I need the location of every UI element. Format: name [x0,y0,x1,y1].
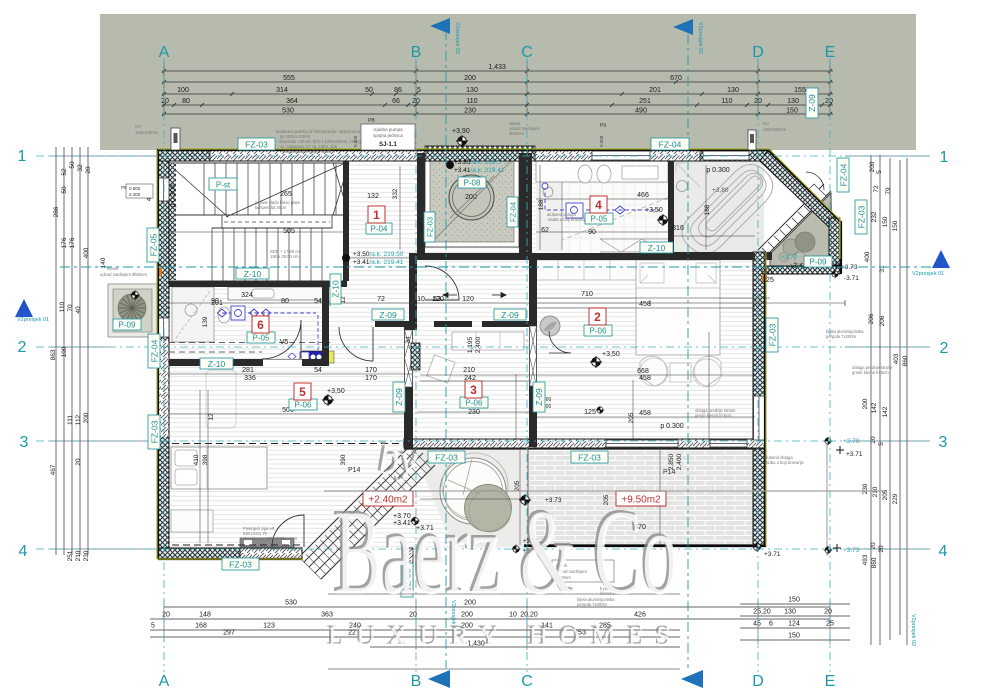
svg-text:100: 100 [61,346,68,357]
svg-text:142: 142 [871,402,878,413]
svg-text:54: 54 [314,367,322,374]
svg-text:398: 398 [202,454,209,465]
svg-text:P-06: P-06 [590,327,607,336]
svg-text:670: 670 [670,75,682,82]
svg-text:100x100mm: 100x100mm [763,127,787,132]
svg-text:50: 50 [69,161,76,169]
svg-text:130: 130 [727,87,739,94]
svg-text:80: 80 [182,98,190,105]
svg-text:+3.50/a.k. 219.50: +3.50/a.k. 219.50 [353,251,404,258]
svg-text:458: 458 [639,375,651,382]
svg-text:176: 176 [61,237,68,248]
svg-text:FZ-03: FZ-03 [150,420,160,443]
svg-text:125: 125 [762,277,774,284]
svg-text:230: 230 [468,409,480,416]
svg-text:FZ-03: FZ-03 [245,140,268,150]
svg-text:- temperaturni odgovrst 20 A: - temperaturni odgovrst 20 A [282,149,335,154]
svg-text:50: 50 [61,186,68,194]
svg-text:LUXURY HOMES: LUXURY HOMES [328,622,683,652]
svg-text:D: D [752,673,764,690]
svg-text:66: 66 [392,98,400,105]
svg-text:205: 205 [628,412,635,423]
svg-text:20: 20 [75,458,82,466]
svg-text:390: 390 [340,454,347,465]
svg-text:100: 100 [177,87,189,94]
svg-text:200: 200 [862,398,869,409]
svg-text:132: 132 [367,193,379,200]
svg-text:403: 403 [893,353,900,364]
svg-text:530: 530 [285,600,297,607]
svg-text:+3.73: +3.73 [841,264,858,271]
svg-text:P-09: P-09 [810,258,827,267]
svg-text:139: 139 [202,316,209,327]
svg-text:P-06: P-06 [466,399,483,408]
svg-text:OV: OV [135,124,141,129]
svg-text:P-04: P-04 [371,225,388,234]
svg-text:2.300: 2.300 [129,192,141,197]
svg-text:P-05: P-05 [591,215,608,224]
svg-text:FZ-03: FZ-03 [578,453,601,463]
svg-text:P9: P9 [600,123,606,129]
svg-text:V2presjek 02: V2presjek 02 [454,22,460,54]
svg-text:+3,90: +3,90 [452,128,470,135]
svg-text:34: 34 [405,336,412,344]
svg-text:230: 230 [83,550,90,561]
svg-text:+3.70: +3.70 [781,254,798,261]
svg-text:150: 150 [788,633,800,640]
svg-text:364: 364 [286,98,298,105]
svg-text:251: 251 [639,98,651,105]
svg-text:70: 70 [67,304,74,312]
svg-text:5: 5 [299,385,306,399]
svg-text:FZ-04: FZ-04 [839,163,849,186]
svg-text:150: 150 [786,108,798,115]
svg-text:210: 210 [463,367,475,374]
svg-text:odvod zardinjere Ø50mm: odvod zardinjere Ø50mm [100,272,148,277]
svg-text:B: B [411,44,422,61]
svg-text:40: 40 [75,306,82,314]
svg-text:Z-09: Z-09 [379,310,397,320]
svg-text:P-09: P-09 [119,321,136,330]
svg-text:2,850: 2,850 [668,453,675,470]
svg-text:45: 45 [753,621,761,628]
svg-text:FZ-04: FZ-04 [150,339,160,362]
svg-text:10: 10 [417,296,425,303]
svg-text:V2presjek 01: V2presjek 01 [912,271,944,277]
svg-text:206: 206 [868,313,875,324]
svg-text:5: 5 [876,170,883,174]
svg-text:p 0.300: p 0.300 [706,167,729,174]
svg-text:110: 110 [721,98,732,105]
svg-text:148: 148 [199,612,211,619]
svg-text:2,400: 2,400 [475,336,482,353]
svg-text:112: 112 [75,414,82,425]
svg-text:1: 1 [373,208,380,222]
svg-text:168: 168 [195,623,207,630]
svg-text:FZ-05: FZ-05 [149,233,159,256]
svg-text:130: 130 [784,609,796,616]
svg-text:25,20: 25,20 [753,609,771,616]
svg-text:V2presjek 02: V2presjek 02 [910,614,916,646]
svg-text:170: 170 [365,375,377,382]
svg-text:Z-09: Z-09 [501,310,519,320]
svg-text:Z-10: Z-10 [244,269,262,279]
svg-text:A: A [159,44,170,61]
svg-text:86: 86 [394,87,402,94]
svg-text:3: 3 [470,383,477,397]
svg-text:90: 90 [211,298,219,305]
svg-text:P-08: P-08 [464,179,481,188]
svg-text:p 0.300: p 0.300 [170,184,177,207]
svg-text:316: 316 [672,225,684,232]
svg-text:E: E [825,44,836,61]
svg-text:1,433: 1,433 [488,64,506,71]
svg-text:+3,50: +3,50 [327,388,345,395]
svg-text:4: 4 [19,543,28,560]
svg-text:190 x 28.00 cm: 190 x 28.00 cm [270,254,299,259]
svg-text:90: 90 [588,229,596,236]
svg-text:200: 200 [464,75,476,82]
svg-text:E: E [825,673,836,690]
svg-text:A: A [159,673,170,690]
svg-text:120: 120 [462,296,474,303]
svg-text:710: 710 [581,291,593,298]
svg-text:Baerz & Co: Baerz & Co [334,485,678,620]
svg-text:493: 493 [862,554,869,565]
svg-text:5: 5 [878,442,885,446]
svg-text:170: 170 [365,367,377,374]
svg-text:D: D [752,44,764,61]
svg-text:FZ-03: FZ-03 [768,323,778,346]
svg-text:2: 2 [940,340,949,357]
svg-text:SJ-1.1: SJ-1.1 [379,142,397,148]
svg-text:400: 400 [864,251,871,262]
svg-text:110: 110 [466,98,477,105]
svg-text:281: 281 [242,367,254,374]
svg-text:by: by [379,438,419,484]
svg-text:1: 1 [940,149,949,166]
svg-text:20: 20 [824,609,832,616]
svg-text:860: 860 [902,355,909,366]
svg-text:0.500: 0.500 [599,135,604,147]
svg-text:+3,50: +3,50 [645,207,663,214]
svg-text:530: 530 [282,108,294,115]
svg-text:150: 150 [892,220,899,231]
svg-text:111: 111 [67,415,74,425]
svg-text:50: 50 [365,87,373,94]
svg-text:80: 80 [281,298,289,305]
svg-text:265: 265 [280,191,292,198]
svg-text:555: 555 [283,75,295,82]
svg-text:P14: P14 [348,467,361,474]
svg-text:Z-09: Z-09 [394,388,404,406]
svg-text:297: 297 [223,630,235,637]
svg-text:125: 125 [584,409,596,416]
svg-text:2: 2 [594,310,601,324]
svg-text:458: 458 [639,410,651,417]
svg-text:466: 466 [637,192,649,199]
svg-text:-sluba u boji bravarije: -sluba u boji bravarije [764,460,804,465]
svg-text:FZ-04: FZ-04 [509,202,518,222]
svg-text:110: 110 [59,301,66,312]
svg-text:5: 5 [417,87,421,94]
svg-text:123: 123 [263,623,275,630]
svg-text:332: 332 [392,188,399,199]
svg-text:B: B [411,673,422,690]
svg-text:505: 505 [283,228,295,235]
svg-text:P14: P14 [663,469,676,476]
svg-text:400: 400 [83,247,90,258]
svg-text:izjadna pumpa: izjadna pumpa [373,127,403,132]
svg-text:+3.85/a.k. 219.5: +3.85/a.k. 219.5 [454,159,501,166]
svg-text:+3,50: +3,50 [602,351,620,358]
svg-text:FZ-03: FZ-03 [229,560,252,570]
svg-text:176: 176 [69,237,76,248]
svg-text:668: 668 [637,368,649,375]
svg-text:6: 6 [257,318,264,332]
svg-text:251: 251 [67,550,74,561]
svg-text:4: 4 [939,543,948,560]
svg-text:130: 130 [466,87,478,94]
svg-text:150: 150 [882,216,889,227]
svg-text:C: C [521,673,533,690]
svg-text:FZ-04: FZ-04 [659,140,682,150]
svg-text:130: 130 [787,98,799,105]
svg-text:+3.78: +3.78 [843,438,860,445]
svg-text:OV: OV [763,121,769,126]
svg-text:229: 229 [892,493,899,504]
svg-text:150: 150 [760,269,772,276]
svg-text:72: 72 [873,185,880,193]
svg-text:Z-09: Z-09 [807,94,817,112]
svg-text:2: 2 [18,339,27,356]
svg-text:V2presjek 01: V2presjek 01 [17,317,49,323]
svg-text:grede klemit 0+5cm: grede klemit 0+5cm [695,413,732,418]
svg-text:12: 12 [208,413,215,421]
svg-text:V5: V5 [280,339,289,346]
svg-text:Z-10: Z-10 [648,243,666,253]
svg-text:206: 206 [879,315,886,326]
svg-text:5: 5 [151,623,155,630]
svg-text:+3.73: +3.73 [843,547,860,554]
svg-text:860: 860 [871,557,878,568]
svg-text:20: 20 [870,542,877,550]
svg-text:324: 324 [241,292,253,299]
svg-text:el. odsisao +20V, 230kv, zom: el. odsisao +20V, 230kv, zom [243,536,298,541]
svg-text:188: 188 [538,199,545,210]
svg-text:124: 124 [788,621,800,628]
svg-text:467: 467 [50,464,57,475]
svg-text:210: 210 [872,486,879,497]
svg-text:200: 200 [869,161,876,172]
svg-text:63: 63 [433,296,441,303]
svg-text:6: 6 [769,621,773,628]
svg-text:232: 232 [871,211,878,222]
svg-text:314: 314 [276,87,288,94]
svg-text:grede klemit 0+5cm: grede klemit 0+5cm [852,370,889,375]
svg-text:863: 863 [50,349,57,360]
svg-text:FZ-03: FZ-03 [857,205,867,228]
svg-text:P-06: P-06 [295,401,312,410]
svg-text:spojna jedinica: spojna jedinica [373,133,403,138]
svg-text:pergola 7x300m: pergola 7x300m [826,334,857,339]
svg-text:p 0.300: p 0.300 [660,423,683,430]
svg-text:0.500: 0.500 [353,135,358,147]
svg-text:+3,80: +3,80 [712,187,729,194]
svg-text:3: 3 [20,434,29,451]
svg-text:Ø50mm: Ø50mm [509,131,524,136]
svg-text:P-st: P-st [216,181,231,190]
svg-text:490: 490 [635,108,647,115]
svg-text:54: 54 [314,298,322,305]
svg-text:Z-09: Z-09 [534,388,544,406]
svg-text:+3.71: +3.71 [846,451,863,458]
svg-text:20: 20 [870,436,877,444]
svg-text:1: 1 [18,148,27,165]
svg-text:PB: PB [368,118,375,124]
svg-text:100x100mm: 100x100mm [135,130,159,135]
svg-text:-3.71: -3.71 [844,275,859,282]
svg-text:Z-10: Z-10 [208,359,226,369]
svg-text:P-05: P-05 [253,334,270,343]
svg-text:20: 20 [85,166,92,174]
svg-text:32: 32 [77,164,84,172]
svg-text:410: 410 [193,454,200,465]
svg-text:C: C [521,44,533,61]
svg-text:20: 20 [161,98,169,105]
svg-text:336: 336 [244,375,256,382]
svg-text:79: 79 [885,187,892,195]
svg-text:20: 20 [162,612,170,619]
svg-text:155: 155 [794,87,806,94]
svg-text:31: 31 [879,265,886,273]
svg-text:-stuba u boji bravarije: -stuba u boji bravarije [547,217,588,222]
svg-text:+3.41/a.k. 219.41: +3.41/a.k. 219.41 [454,167,505,174]
svg-text:+3.41/a.k. 219.41: +3.41/a.k. 219.41 [353,259,404,266]
svg-text:201: 201 [649,87,661,94]
svg-text:FZ-03: FZ-03 [426,217,435,237]
svg-text:2,400: 2,400 [676,453,683,470]
svg-text:+3.71: +3.71 [764,551,781,558]
svg-text:142: 142 [882,406,889,417]
svg-text:230: 230 [862,483,869,494]
svg-text:3: 3 [939,434,948,451]
svg-text:188: 188 [704,204,711,215]
svg-text:363: 363 [321,612,333,619]
svg-text:20: 20 [825,98,833,105]
svg-text:V2presjek 02: V2presjek 02 [697,22,703,54]
svg-text:1,195: 1,195 [467,336,474,353]
svg-text:0.500: 0.500 [129,186,141,191]
svg-text:210: 210 [75,550,82,561]
svg-text:Z-10: Z-10 [331,280,341,298]
svg-text:458: 458 [639,301,651,308]
svg-text:150: 150 [788,597,800,604]
svg-text:52: 52 [61,168,68,176]
svg-text:62: 62 [541,227,549,234]
svg-text:P8: P8 [121,185,127,190]
svg-text:286: 286 [53,206,60,217]
svg-text:200: 200 [83,412,90,423]
svg-text:72: 72 [377,296,385,303]
svg-text:FZ-03: FZ-03 [435,453,458,463]
svg-text:4: 4 [595,198,602,212]
svg-text:talisperidal 25cm: talisperidal 25cm [255,205,287,210]
svg-text:230: 230 [464,108,476,115]
